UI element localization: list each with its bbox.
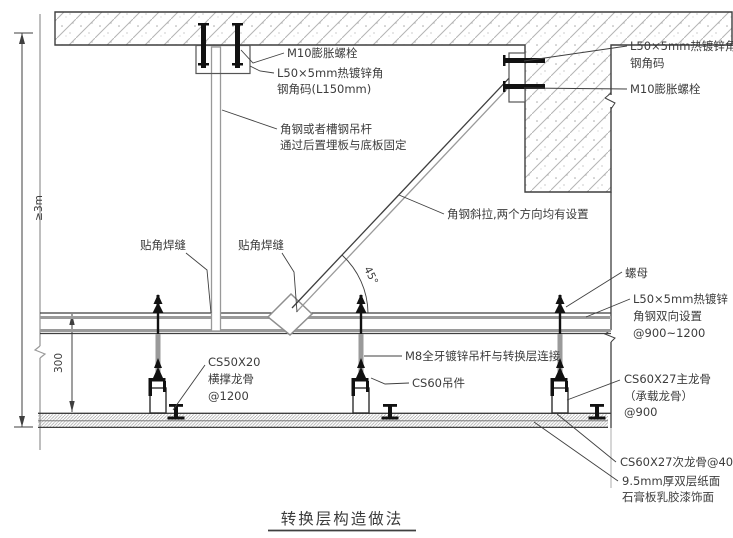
diagonal-brace: [292, 75, 516, 312]
left-boundary-line: [35, 14, 45, 450]
leader-hanger-rod: [222, 110, 277, 129]
leader-transfer-angle: [586, 299, 630, 317]
label-transfer-1: L50×5mm热镀锌: [633, 292, 728, 306]
leader-m10-top: [241, 50, 284, 63]
label-transfer-3: @900~1200: [633, 326, 705, 340]
label-bracket-top-2: 钢角码(L150mm): [277, 82, 371, 96]
cross-keel-glyph-2: [382, 404, 399, 420]
label-m8-rod: M8全牙镀锌吊杆与转换层连接: [405, 349, 561, 363]
label-cs50-1: CS50X20: [208, 355, 260, 369]
cross-keel-glyph-3: [589, 404, 606, 420]
wall-break-mark: [604, 93, 618, 109]
hanger-assembly-2: [352, 294, 370, 413]
label-brace: 角钢斜拉,两个方向均有设置: [447, 207, 589, 221]
label-bracket-right-1: L50×5mm热镀锌角: [630, 39, 733, 53]
leader-bracket-top: [250, 66, 274, 73]
label-cs50-3: @1200: [208, 389, 249, 403]
transfer-layer-band: [40, 313, 611, 334]
leader-cs50: [173, 365, 205, 410]
label-hanger-2: 通过后置埋板与底板固定: [280, 138, 407, 152]
right-boundary-line: [605, 192, 615, 488]
leader-cs60: [371, 378, 409, 384]
hanger-assembly-1: [149, 294, 167, 413]
brace-angle-arc: [342, 255, 368, 313]
callout-texts: M10膨胀螺栓 L50×5mm热镀锌角 钢角码(L150mm) 角钢或者槽钢吊杆…: [140, 39, 733, 504]
label-main-keel-3: @900: [624, 405, 657, 419]
leader-gypsum: [534, 422, 618, 481]
dim-transfer-offset: 300: [53, 314, 75, 412]
label-gypsum-1: 9.5mm厚双层纸面: [622, 474, 720, 488]
leader-nut: [566, 272, 622, 307]
label-cs50-2: 横撑龙骨: [208, 372, 254, 386]
label-weld-right: 贴角焊缝: [238, 238, 284, 252]
label-cs60: CS60吊件: [412, 376, 465, 390]
label-sub-keel: CS60X27次龙骨@400: [620, 455, 733, 469]
transfer-layer-detail-drawing: ≥3m 300 45°: [0, 0, 733, 538]
main-hanger-rod: [212, 47, 221, 331]
label-transfer-2: 角钢双向设置: [633, 309, 702, 323]
leader-main-keel: [567, 380, 620, 400]
dim-label-overall: ≥3m: [33, 195, 45, 221]
label-bracket-top-1: L50×5mm热镀锌角: [277, 66, 383, 80]
drawing-title: 转换层构造做法: [268, 510, 416, 531]
label-bracket-right-2: 钢角码: [630, 56, 665, 70]
label-m10-right: M10膨胀螺栓: [630, 82, 701, 96]
leader-sub-keel: [557, 414, 616, 462]
label-main-keel-2: （承载龙骨）: [624, 389, 693, 403]
dim-label-300: 300: [53, 353, 65, 373]
label-nut: 螺母: [625, 266, 648, 280]
leader-weld-left: [186, 253, 211, 313]
brace-angle-label: 45°: [361, 265, 380, 287]
label-hanger-1: 角钢或者槽钢吊杆: [280, 122, 372, 136]
leader-brace: [399, 195, 444, 214]
label-main-keel-1: CS60X27主龙骨: [624, 372, 711, 386]
title-text: 转换层构造做法: [281, 510, 404, 528]
brace-foot-plate: [268, 294, 312, 335]
label-m10-top: M10膨胀螺栓: [287, 46, 358, 60]
label-weld-left: 贴角焊缝: [140, 238, 186, 252]
gypsum-board-band: [38, 413, 611, 427]
label-gypsum-2: 石膏板乳胶漆饰面: [622, 490, 714, 504]
construction-detail-sheet: ≥3m 300 45°: [0, 0, 733, 538]
